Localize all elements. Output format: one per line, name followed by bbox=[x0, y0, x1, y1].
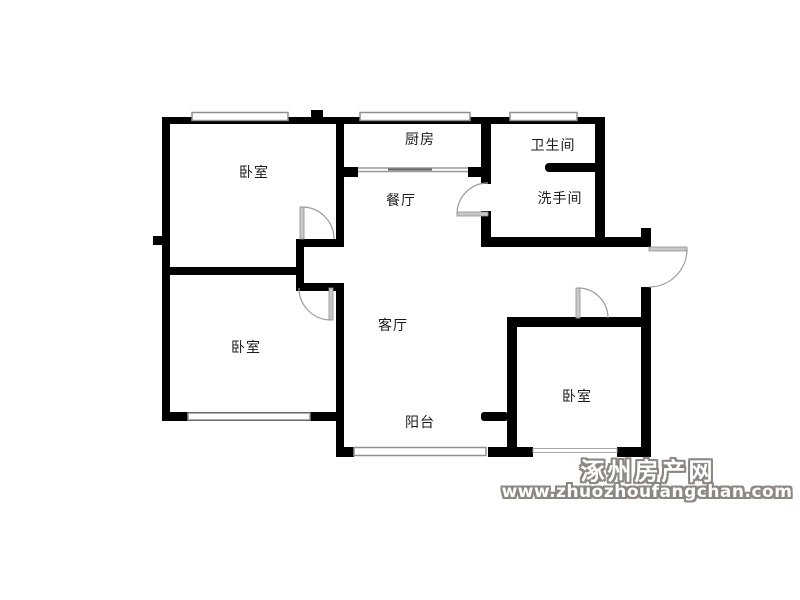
room-label-balcony: 阳台 bbox=[405, 412, 435, 432]
wall-bathroom-washroom-divider bbox=[545, 163, 600, 172]
wall-bedroom-bottom-right-top bbox=[507, 317, 651, 327]
wall-kitchen-divider-stub-left bbox=[344, 167, 358, 177]
room-label-living-room: 客厅 bbox=[378, 315, 408, 335]
room-label-bathroom: 卫生间 bbox=[531, 135, 576, 155]
window-bathroom bbox=[510, 113, 577, 121]
wall-balcony-bottom-right bbox=[488, 447, 533, 457]
door-arc-bedroom-bottom-right bbox=[578, 288, 608, 318]
door-panel-bedroom-bottom-right bbox=[576, 288, 580, 318]
wall-balcony-stub bbox=[481, 412, 508, 421]
door-panel-washroom bbox=[457, 212, 488, 216]
room-label-kitchen: 厨房 bbox=[405, 129, 435, 149]
wall-kitchen-divider-stub-right bbox=[468, 167, 481, 177]
wall-left-joint-block bbox=[153, 236, 162, 245]
door-arc-bedroom-bottom-left bbox=[299, 288, 331, 320]
door-panel-bedroom-top-left bbox=[300, 207, 304, 239]
room-label-dining-room: 餐厅 bbox=[386, 190, 416, 210]
room-label-bedroom-bottom-right: 卧室 bbox=[562, 386, 592, 406]
wall-right-exterior-lower bbox=[641, 287, 651, 457]
window-balcony bbox=[354, 448, 486, 456]
wall-balcony-bottom-left bbox=[336, 447, 354, 457]
room-label-washroom: 洗手间 bbox=[538, 188, 583, 208]
wall-spine-upper bbox=[336, 121, 344, 247]
floor-plan: 卧室 厨房 卫生间 洗手间 餐厅 客厅 卧室 卧室 阳台 涿州房产网 www.z… bbox=[0, 0, 800, 600]
kitchen-divider-lines bbox=[358, 168, 468, 172]
window-kitchen bbox=[360, 113, 470, 121]
window-bedroom-top-left bbox=[192, 113, 288, 121]
wall-bathroom-right bbox=[595, 121, 605, 237]
door-panel-bedroom-bottom-left bbox=[329, 288, 333, 320]
door-arc-washroom bbox=[457, 183, 488, 214]
floor-plan-drawing bbox=[0, 0, 800, 600]
watermark-site-url: www.zhuozhoufangchan.com bbox=[502, 482, 793, 502]
wall-bedroom-bottom-right-left bbox=[507, 317, 517, 457]
wall-bedroom-party bbox=[162, 267, 304, 275]
room-label-bedroom-bottom-left: 卧室 bbox=[231, 337, 261, 357]
door-panel-entrance bbox=[649, 247, 687, 251]
wall-niche-left bbox=[296, 239, 304, 288]
wall-washroom-bottom bbox=[481, 237, 649, 247]
wall-spine-lower bbox=[336, 283, 344, 457]
door-arc-entrance bbox=[649, 249, 687, 287]
window-bedroom-bottom-left bbox=[188, 413, 310, 420]
wall-bathroom-left-upper bbox=[481, 121, 491, 184]
wall-right-exterior-upper bbox=[641, 228, 651, 247]
room-label-bedroom-top-left: 卧室 bbox=[239, 162, 269, 182]
door-arc-bedroom-top-left bbox=[302, 207, 334, 239]
wall-top-pier bbox=[311, 110, 323, 119]
